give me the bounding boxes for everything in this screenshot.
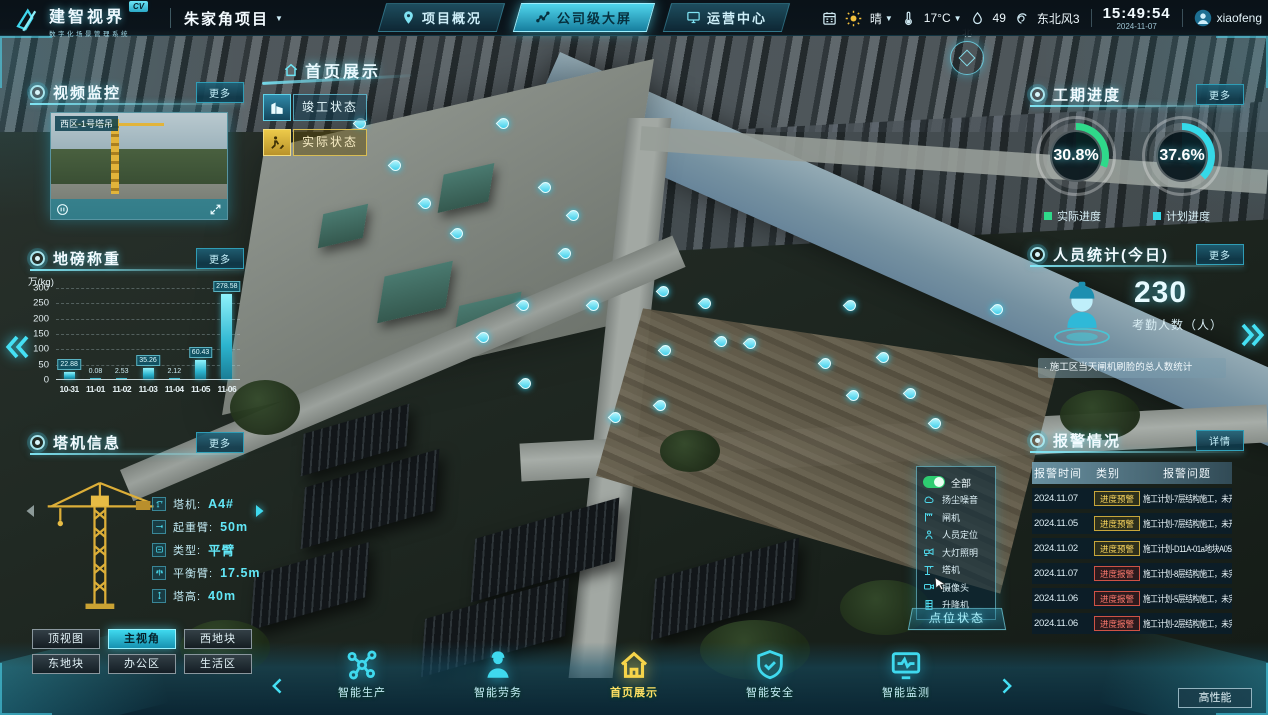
progress-gauge: 37.6%	[1142, 116, 1222, 196]
map-trees	[660, 430, 720, 472]
project-name: 朱家角项目	[184, 8, 269, 29]
alarm-badge: 进度报警	[1094, 616, 1140, 631]
chart-x-label: 11-05	[187, 384, 213, 394]
gauge-value: 37.6%	[1159, 147, 1204, 165]
all-toggle[interactable]	[923, 476, 945, 488]
floodlight-icon	[923, 546, 935, 558]
legend-item[interactable]: 扬尘噪音	[923, 491, 989, 509]
crane-info-row: 塔机:A4#	[152, 492, 261, 515]
progress-panel-title: 工期进度	[1053, 84, 1121, 105]
chart-x-label: 11-03	[135, 384, 161, 394]
chart-bar	[169, 378, 180, 380]
alarm-issue-text: 施工计划-8层结构施工，未完成	[1143, 567, 1232, 580]
tab-project-overview[interactable]: 项目概况	[378, 3, 505, 32]
progress-more-button[interactable]: 更多	[1196, 84, 1244, 105]
compass-icon	[950, 41, 984, 75]
alarm-rows: 2024.11.07进度预警施工计划-7层结构施工，未开始2024.11.05进…	[1032, 488, 1232, 634]
alarm-time: 2024.11.07	[1032, 493, 1094, 504]
alarm-header-type: 类别	[1094, 465, 1142, 481]
alarm-row[interactable]: 2024.11.07进度预警施工计划-7层结构施工，未开始	[1032, 488, 1232, 509]
progress-gauges: 30.8%37.6%	[1036, 116, 1222, 196]
chart-gridline	[56, 349, 240, 350]
alarm-time: 2024.11.05	[1032, 518, 1094, 529]
crane-field-value: A4#	[208, 497, 234, 511]
dashboard-screen: 建智视界 CV 数字化场景管理系统 朱家角项目 ▼ 项目概况公司级大屏运营中心 …	[0, 0, 1268, 715]
map-building-dark	[250, 542, 369, 630]
crane-field-label: 塔高:	[173, 588, 201, 604]
legend-marker	[1044, 212, 1052, 220]
nav-smart-monitoring[interactable]: 智能监测	[870, 648, 942, 700]
alarm-issue: 施工计划-D11A-01a地块A05#…	[1143, 542, 1232, 555]
legend-item-label: 人员定位	[942, 528, 978, 541]
chart-x-label: 11-06	[214, 384, 240, 394]
chart-x-labels: 10-3111-0111-0211-0311-0411-0511-06	[56, 384, 240, 394]
alarm-issue: 施工计划-2层结构施工，未完成	[1143, 617, 1232, 630]
panel-underline	[30, 453, 244, 455]
chart-gridline	[56, 319, 240, 320]
legend-marker	[1153, 212, 1161, 220]
panel-ring-icon	[1030, 247, 1045, 262]
divider	[1182, 9, 1183, 27]
alarm-issue-text: 施工计划-D11A-01a地块A05#…	[1143, 542, 1232, 555]
panel-collapse-left-button[interactable]	[2, 330, 32, 364]
chart-x-label: 11-04	[161, 384, 187, 394]
progress-gauge: 30.8%	[1036, 116, 1116, 196]
video-controls	[51, 199, 227, 219]
crane-info-row: 塔高:40m	[152, 584, 261, 607]
nav-label: 智能劳务	[474, 684, 522, 700]
legend-all-label: 全部	[951, 475, 971, 490]
alarm-issue-text: 施工计划-7层结构施工，未开始	[1143, 517, 1232, 530]
alarm-row[interactable]: 2024.11.06进度报警施工计划-5层结构施工，未完成	[1032, 588, 1232, 609]
chart-x-label: 11-02	[109, 384, 135, 394]
monitoring-icon	[889, 648, 923, 682]
cv-badge: CV	[129, 1, 148, 12]
map-point-marker[interactable]	[518, 376, 534, 392]
username: xiaofeng	[1217, 11, 1262, 25]
chart-x-label: 10-31	[56, 384, 82, 394]
calendar-icon[interactable]	[822, 11, 837, 26]
chevron-down-icon: ▼	[885, 14, 893, 23]
legend-item[interactable]: 大灯照明	[923, 544, 989, 562]
personnel-panel-header: 人员统计(今日) 更多	[1030, 242, 1244, 266]
video-feed[interactable]: 西区-1号塔吊	[50, 112, 228, 220]
humidity-value: 49	[993, 11, 1006, 25]
app-logo: 建智视界 CV 数字化场景管理系统	[12, 3, 148, 38]
chart-value-label: 2.12	[165, 367, 183, 376]
crane-field-value: 50m	[220, 520, 248, 534]
project-selector[interactable]: 朱家角项目 ▼	[184, 0, 283, 36]
legend-item-label: 大灯照明	[942, 546, 978, 559]
crane-info-row: 类型:平臂	[152, 538, 261, 561]
chart-tick-label: 50	[38, 359, 49, 370]
chart-tick-label: 150	[33, 329, 49, 340]
location-pin-icon	[401, 10, 416, 25]
alarm-table-header: 报警时间 类别 报警问题	[1032, 462, 1232, 484]
nav-smart-security[interactable]: 智能安全	[734, 648, 806, 700]
alarm-time: 2024.11.07	[1032, 568, 1094, 579]
state-buttons: 竣工状态实际状态	[263, 94, 367, 164]
avatar	[1194, 9, 1212, 27]
alarm-row[interactable]: 2024.11.06进度报警施工计划-2层结构施工，未完成	[1032, 613, 1232, 634]
tab-operations-center[interactable]: 运营中心	[663, 3, 790, 32]
chart-gridline	[56, 334, 240, 335]
panel-underline	[1030, 265, 1244, 267]
view-button-顶视图[interactable]: 顶视图	[32, 629, 100, 649]
video-trees	[51, 149, 227, 184]
chart-x-label: 11-01	[82, 384, 108, 394]
panel-ring-icon	[30, 85, 45, 100]
gauge-value: 30.8%	[1053, 147, 1098, 165]
panel-ring-icon	[1030, 87, 1045, 102]
legend-label: 计划进度	[1166, 208, 1210, 224]
bottom-nav: 智能生产智能劳务首页展示智能安全智能监测	[0, 648, 1268, 715]
attendance-count-label: 考勤人数（人）	[1132, 316, 1223, 333]
alarm-issue-text: 施工计划-2层结构施工，未完成	[1143, 617, 1232, 630]
crane-icon	[152, 497, 166, 511]
divider	[170, 8, 171, 28]
fullscreen-icon[interactable]	[209, 203, 222, 216]
alarm-row[interactable]: 2024.11.05进度预警施工计划-7层结构施工，未开始	[1032, 513, 1232, 534]
alarm-issue: 施工计划-8层结构施工，未完成	[1143, 567, 1232, 580]
alarm-issue-text: 施工计划-7层结构施工，未开始	[1143, 492, 1232, 505]
app-title: 建智视界	[49, 3, 125, 27]
crane-panel-title: 塔机信息	[53, 432, 121, 453]
alarm-issue: 施工计划-7层结构施工，未开始	[1143, 517, 1232, 530]
weather-condition[interactable]: 晴▼	[870, 10, 893, 27]
person-locate-icon	[923, 529, 935, 541]
view-button-主视角[interactable]: 主视角	[108, 629, 176, 649]
crane-field-value: 平臂	[208, 540, 235, 559]
chart-plot-area: 22.880.082.5335.262.1260.43278.58	[56, 288, 240, 380]
chevron-down-icon: ▼	[954, 14, 962, 23]
home-icon	[283, 62, 299, 78]
app-subtitle: 数字化场景管理系统	[49, 28, 148, 38]
map-point-marker[interactable]	[656, 284, 672, 300]
legend-item-label: 闸机	[942, 511, 960, 524]
performance-mode-button[interactable]: 高性能	[1178, 688, 1252, 708]
panel-ring-icon	[1030, 433, 1045, 448]
chart-gridline	[56, 303, 240, 304]
crane-info-row: 起重臂:50m	[152, 515, 261, 538]
tab-company-screen[interactable]: 公司级大屏	[513, 3, 655, 32]
nav-next-icon[interactable]	[996, 674, 1016, 698]
temperature-value[interactable]: 17°C▼	[924, 11, 962, 25]
height-icon	[152, 589, 166, 603]
panel-collapse-right-button[interactable]	[1238, 318, 1268, 352]
progress-legends: 实际进度计划进度	[1044, 208, 1210, 224]
thermometer-icon	[901, 11, 916, 26]
chart-tick-label: 300	[33, 283, 49, 294]
tower-crane-illustration	[40, 456, 158, 618]
nav-label: 智能生产	[338, 684, 386, 700]
nav-smart-labor[interactable]: 智能劳务	[462, 648, 534, 700]
time-value: 15:49:54	[1103, 6, 1171, 21]
logo-icon	[12, 6, 42, 36]
top-tabs: 项目概况公司级大屏运营中心	[382, 3, 786, 33]
alarm-detail-button[interactable]: 详情	[1196, 430, 1244, 451]
gauge-legend: 实际进度	[1044, 208, 1101, 224]
chart-bar	[64, 372, 75, 379]
crane-field-label: 起重臂:	[173, 519, 213, 535]
home-icon	[617, 648, 651, 682]
panel-underline	[1030, 105, 1244, 107]
legend-item-label: 扬尘噪音	[942, 493, 978, 506]
weighbridge-more-button[interactable]: 更多	[196, 248, 244, 269]
chart-bar	[90, 378, 101, 380]
crane-info-list: 塔机:A4#起重臂:50m类型:平臂平衡臂:17.5m塔高:40m	[152, 492, 261, 607]
personnel-panel-title: 人员统计(今日)	[1053, 244, 1169, 265]
crane-field-value: 17.5m	[220, 566, 260, 580]
tab-label: 项目概况	[422, 8, 482, 27]
weighbridge-bar-chart: 万(kg) 050100150200250300 22.880.082.5335…	[26, 274, 248, 406]
top-bar: 建智视界 CV 数字化场景管理系统 朱家角项目 ▼ 项目概况公司级大屏运营中心 …	[0, 0, 1268, 36]
panel-underline	[1030, 451, 1244, 453]
alarm-panel-title: 报警情况	[1053, 430, 1121, 451]
crane-field-label: 平衡臂:	[173, 565, 213, 581]
tower-crane-icon	[923, 564, 935, 576]
completed-state-button[interactable]: 竣工状态	[263, 94, 367, 121]
panel-underline	[30, 269, 244, 271]
alarm-header-time: 报警时间	[1032, 465, 1094, 481]
panel-ring-icon	[30, 435, 45, 450]
type-icon	[152, 543, 166, 557]
crane-info-row: 平衡臂:17.5m	[152, 561, 261, 584]
actual-state-button[interactable]: 实际状态	[263, 129, 367, 156]
alarm-badge: 进度预警	[1094, 516, 1140, 531]
alarm-time: 2024.11.02	[1032, 543, 1094, 554]
alarm-header-issue: 报警问题	[1142, 465, 1232, 481]
carousel-prev-icon[interactable]	[22, 500, 40, 522]
chart-bar	[195, 360, 206, 379]
divider	[1091, 9, 1092, 27]
nav-prev-icon[interactable]	[268, 674, 288, 698]
clock: 15:49:54 2024-11-07	[1103, 6, 1171, 31]
attendance-count: 230	[1134, 276, 1187, 310]
tab-label: 运营中心	[707, 8, 767, 27]
nav-label: 首页展示	[610, 684, 658, 700]
alarm-panel-header: 报警情况 详情	[1030, 428, 1244, 452]
alarm-issue: 施工计划-7层结构施工，未开始	[1143, 492, 1232, 505]
legend-item[interactable]: 闸机	[923, 509, 989, 527]
chevron-down-icon: ▼	[275, 14, 283, 23]
alarm-table: 报警时间 类别 报警问题 2024.11.07进度预警施工计划-7层结构施工，未…	[1032, 462, 1232, 634]
date-value: 2024-11-07	[1103, 23, 1171, 31]
chart-bar	[116, 378, 127, 380]
gate-icon	[923, 511, 935, 523]
balance-icon	[152, 566, 166, 580]
nav-home-display[interactable]: 首页展示	[598, 648, 670, 700]
user-menu[interactable]: xiaofeng	[1194, 9, 1262, 27]
alarm-issue: 施工计划-5层结构施工，未完成	[1143, 592, 1232, 605]
camera-label: 西区-1号塔吊	[55, 116, 118, 131]
legend-item[interactable]: 人员定位	[923, 526, 989, 544]
video-panel-header: 视频监控 更多	[30, 80, 244, 104]
crane-field-label: 塔机:	[173, 496, 201, 512]
gauge-legend: 计划进度	[1153, 208, 1210, 224]
chart-value-label: 35.26	[136, 355, 160, 366]
monitor-icon	[686, 10, 701, 25]
chart-bar	[221, 294, 232, 379]
page-title: 首页展示	[283, 58, 381, 82]
labor-icon	[481, 648, 515, 682]
jib-icon	[152, 520, 166, 534]
crane-field-label: 类型:	[173, 542, 201, 558]
chart-value-label: 278.58	[213, 281, 240, 292]
weighbridge-panel-header: 地磅称重 更多	[30, 246, 244, 270]
point-status-button[interactable]: 点位状态	[908, 608, 1006, 630]
pause-icon[interactable]	[56, 203, 69, 216]
chart-bar	[143, 368, 154, 379]
chart-tick-label: 0	[44, 375, 49, 386]
map-point-marker[interactable]	[698, 296, 714, 312]
tab-label: 公司级大屏	[557, 8, 632, 27]
alarm-badge: 进度报警	[1094, 591, 1140, 606]
building-icon	[263, 94, 291, 121]
state-button-label: 竣工状态	[293, 94, 367, 121]
chart-value-label: 2.53	[113, 367, 131, 376]
legend-all-row: 全部	[923, 473, 989, 491]
personnel-more-button[interactable]: 更多	[1196, 244, 1244, 265]
mouse-cursor	[932, 576, 948, 592]
alarm-row[interactable]: 2024.11.07进度报警施工计划-8层结构施工，未完成	[1032, 563, 1232, 584]
alarm-time: 2024.11.06	[1032, 593, 1094, 604]
alarm-badge: 进度预警	[1094, 541, 1140, 556]
legend-items: 扬尘噪音闸机人员定位大灯照明塔机摄像头升降机	[923, 491, 989, 614]
crane-field-value: 40m	[208, 589, 236, 603]
video-more-button[interactable]: 更多	[196, 82, 244, 103]
nav-label: 智能监测	[882, 684, 930, 700]
nav-smart-production[interactable]: 智能生产	[326, 648, 398, 700]
legend-label: 实际进度	[1057, 208, 1101, 224]
panel-ring-icon	[30, 251, 45, 266]
worker-icon	[1046, 270, 1118, 352]
production-icon	[345, 648, 379, 682]
point-legend-panel: 全部 扬尘噪音闸机人员定位大灯照明塔机摄像头升降机	[916, 466, 996, 620]
line-chart-icon	[536, 10, 551, 25]
alarm-badge: 进度报警	[1094, 566, 1140, 581]
chart-value-label: 22.88	[57, 359, 81, 370]
alarm-row[interactable]: 2024.11.02进度预警施工计划-D11A-01a地块A05#…	[1032, 538, 1232, 559]
weighbridge-panel-title: 地磅称重	[53, 248, 121, 269]
chart-value-label: 60.43	[189, 347, 213, 358]
chart-tick-label: 250	[33, 298, 49, 309]
security-icon	[753, 648, 787, 682]
alarm-time: 2024.11.06	[1032, 618, 1094, 629]
panel-underline	[30, 103, 244, 105]
attendance-note: · 施工区当天闸机刷脸的总人数统计	[1038, 358, 1226, 378]
construction-icon	[263, 129, 291, 156]
chart-tick-label: 100	[33, 344, 49, 355]
alarm-issue-text: 施工计划-5层结构施工，未完成	[1143, 592, 1232, 605]
state-button-label: 实际状态	[293, 129, 367, 156]
map-point-marker[interactable]	[843, 298, 859, 314]
crane-more-button[interactable]: 更多	[196, 432, 244, 453]
droplet-icon	[970, 11, 985, 26]
nav-label: 智能安全	[746, 684, 794, 700]
status-area: 晴▼ 17°C▼ 49 东北风3 15:49:54 2024-11-07 xia…	[822, 0, 1262, 36]
chart-tick-label: 200	[33, 313, 49, 324]
view-button-西地块[interactable]: 西地块	[184, 629, 252, 649]
alarm-badge: 进度预警	[1094, 491, 1140, 506]
sun-icon	[845, 10, 862, 27]
legend-item-label: 塔机	[942, 563, 960, 576]
wind-icon	[1014, 11, 1029, 26]
wind-value: 东北风3	[1037, 10, 1080, 27]
carousel-next-icon[interactable]	[250, 500, 268, 522]
dust-noise-icon	[923, 494, 935, 506]
progress-panel-header: 工期进度 更多	[1030, 82, 1244, 106]
chart-value-label: 0.08	[87, 367, 105, 376]
crane-panel-header: 塔机信息 更多	[30, 430, 244, 454]
video-panel-title: 视频监控	[53, 82, 121, 103]
